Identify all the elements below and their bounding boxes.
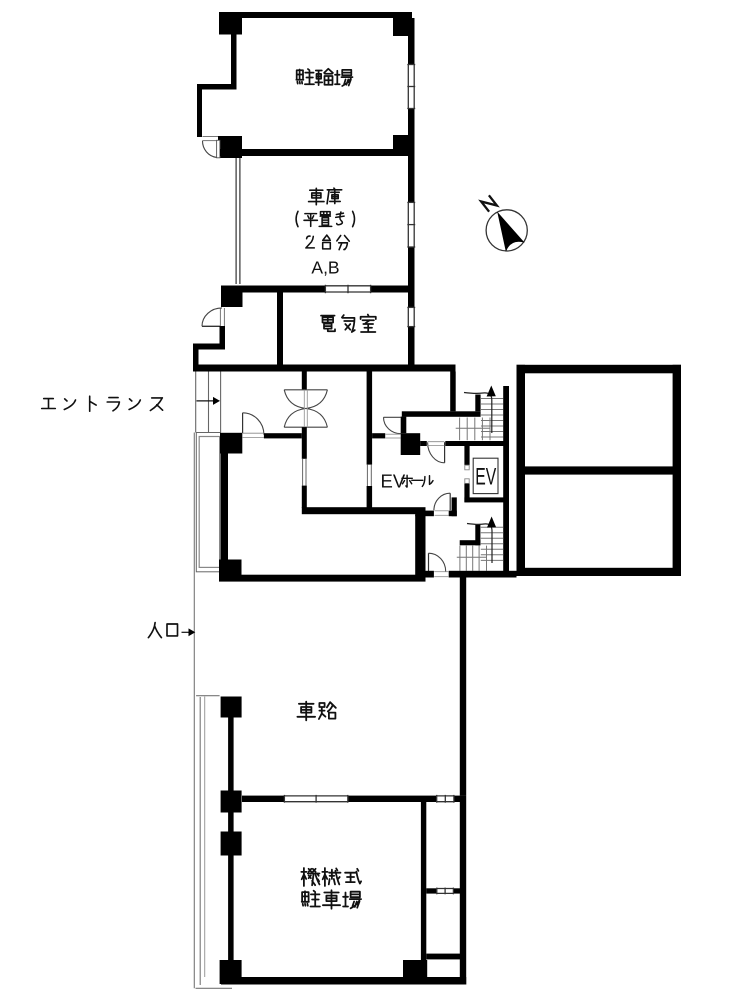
svg-text:A,B: A,B [311,258,339,278]
svg-text:EV: EV [475,464,496,491]
svg-text:EV: EV [381,471,406,492]
